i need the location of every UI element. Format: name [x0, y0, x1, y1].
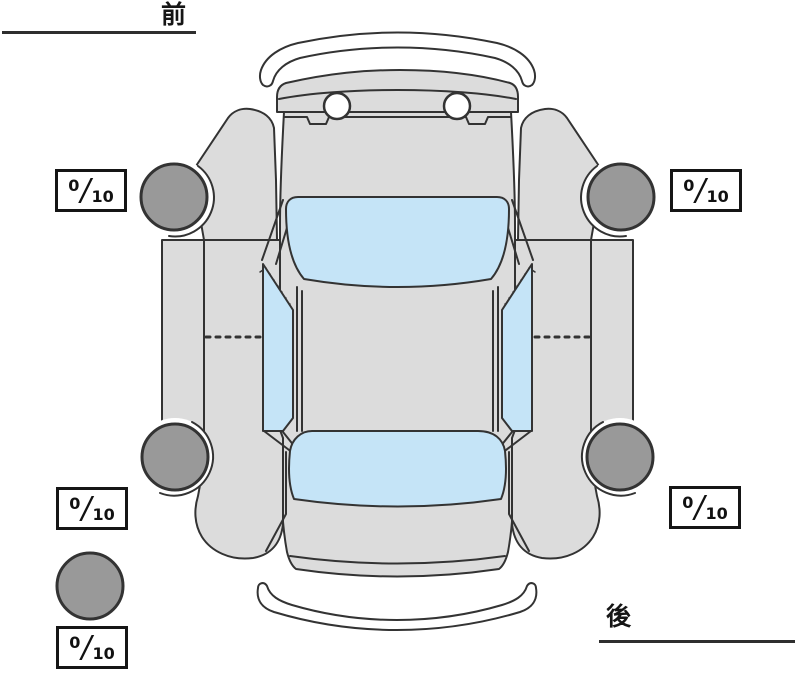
rear-bumper [258, 583, 537, 630]
spare-tire [57, 553, 123, 619]
vehicle-inspection-diagram: 前 後 [0, 0, 800, 675]
tread-separator: / [694, 490, 704, 525]
tread-max: 10 [91, 187, 113, 206]
tread-score-front-right: 0 / 10 [670, 169, 742, 212]
tread-separator: / [695, 173, 705, 208]
tread-max: 10 [705, 504, 727, 523]
tire-rear-right [587, 424, 653, 490]
tread-score-front-left: 0 / 10 [55, 169, 127, 212]
tread-separator: / [80, 173, 90, 208]
tread-max: 10 [706, 187, 728, 206]
car-diagram [0, 0, 800, 675]
tread-value: 0 [683, 176, 694, 195]
tread-value: 0 [682, 493, 693, 512]
rear-window [289, 431, 506, 507]
tread-score-spare: 0 / 10 [56, 626, 128, 669]
tread-separator: / [81, 630, 91, 665]
tread-max: 10 [92, 505, 114, 524]
tire-front-left [141, 164, 207, 230]
tread-score-rear-right: 0 / 10 [669, 486, 741, 529]
tread-separator: / [81, 491, 91, 526]
tread-value: 0 [68, 176, 79, 195]
hood-detail-circle-right [444, 93, 470, 119]
tire-front-right [588, 164, 654, 230]
tire-rear-left [142, 424, 208, 490]
hood-detail-circle-left [324, 93, 350, 119]
tread-value: 0 [69, 494, 80, 513]
tread-value: 0 [69, 633, 80, 652]
tread-max: 10 [92, 644, 114, 663]
tread-score-rear-left: 0 / 10 [56, 487, 128, 530]
windshield [286, 197, 509, 287]
front-fender [196, 109, 277, 240]
